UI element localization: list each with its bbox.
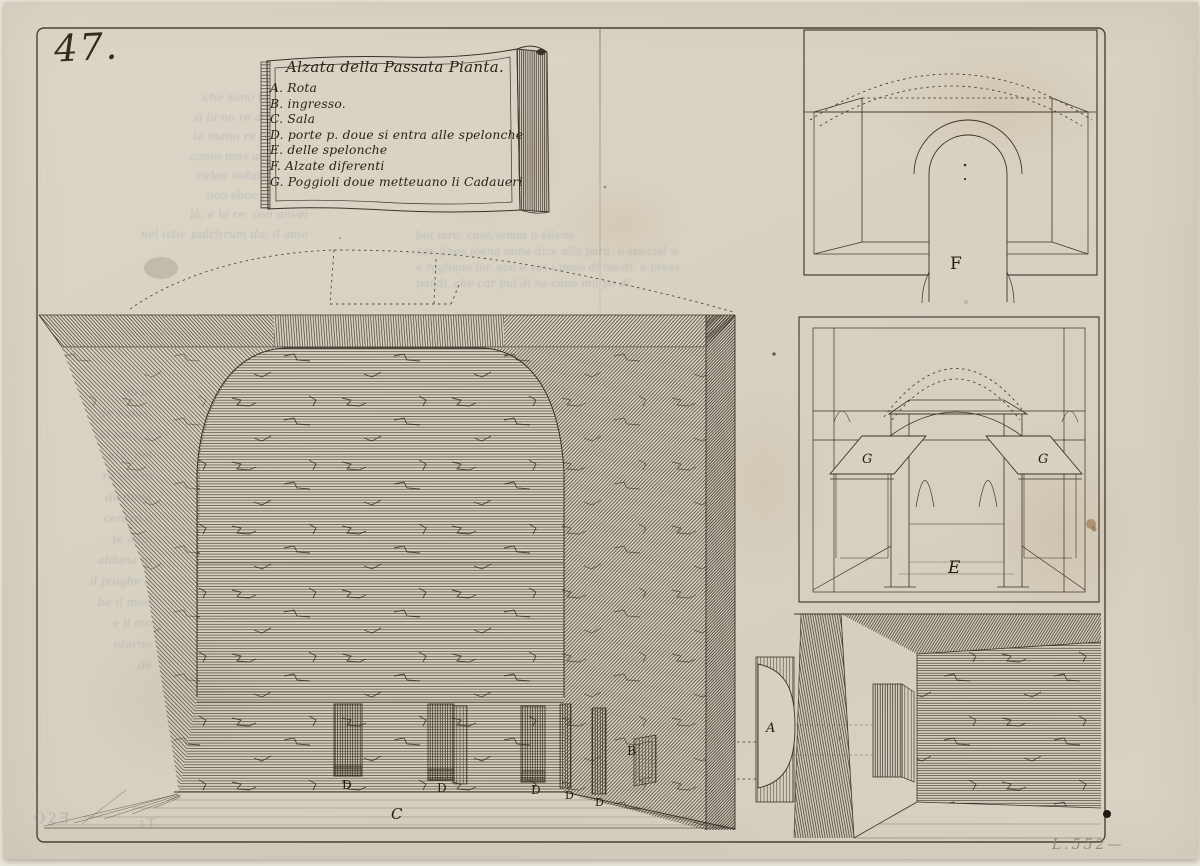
label-poggiolo-g: G — [862, 452, 872, 467]
label-spelonca-e: E — [947, 558, 961, 578]
label-rota-a: A — [765, 721, 775, 736]
legend-line-b: B. ingresso. — [270, 97, 520, 113]
label-porta-d: D — [531, 783, 541, 797]
legend-line-d: D. porte p. doue si entra alle spelonche — [270, 128, 520, 144]
dome-dashed-outline — [130, 250, 733, 312]
plate-number-handwritten: 47. — [53, 24, 120, 70]
label-porta-d: D — [595, 796, 604, 809]
ingresso-door — [634, 735, 656, 786]
label-poggiolo-g: G — [1038, 452, 1048, 467]
legend-line-c: C. Sala — [270, 112, 520, 128]
label-porta-d: D — [565, 789, 574, 802]
engraving-artwork: C D D D D D B F E G G A — [4, 2, 1200, 866]
label-alzata-f: F — [950, 254, 962, 274]
label-porta-d: D — [437, 781, 447, 795]
label-ingresso-b: B — [627, 743, 636, 758]
showthrough-plate-mark: O2Ǝ — [34, 811, 73, 827]
legend-line-e: E. delle spelonche — [270, 143, 520, 159]
corridor-a — [737, 614, 1111, 838]
legend-line-f: F. Alzate diferenti — [270, 159, 520, 175]
ink-dot — [1103, 810, 1111, 818]
cartouche-text: Alzata della Passata Pianta. A. Rota B. … — [270, 58, 520, 190]
legend-line-g: G. Poggioli doue metteuano li Cadaueri — [270, 175, 520, 191]
label-porta-d: D — [342, 778, 352, 792]
legend-line-a: A. Rota — [270, 81, 520, 97]
paper-sheet: che sono legno ellsi la no re alterata ;… — [4, 2, 1198, 859]
pencil-inscription: L.552— — [1052, 837, 1124, 853]
label-sala-c: C — [391, 805, 403, 823]
cartouche-title: Alzata della Passata Pianta. — [270, 58, 520, 76]
showthrough-plate-mark: ıT — [140, 815, 158, 830]
foreground-wall-band — [706, 315, 735, 830]
